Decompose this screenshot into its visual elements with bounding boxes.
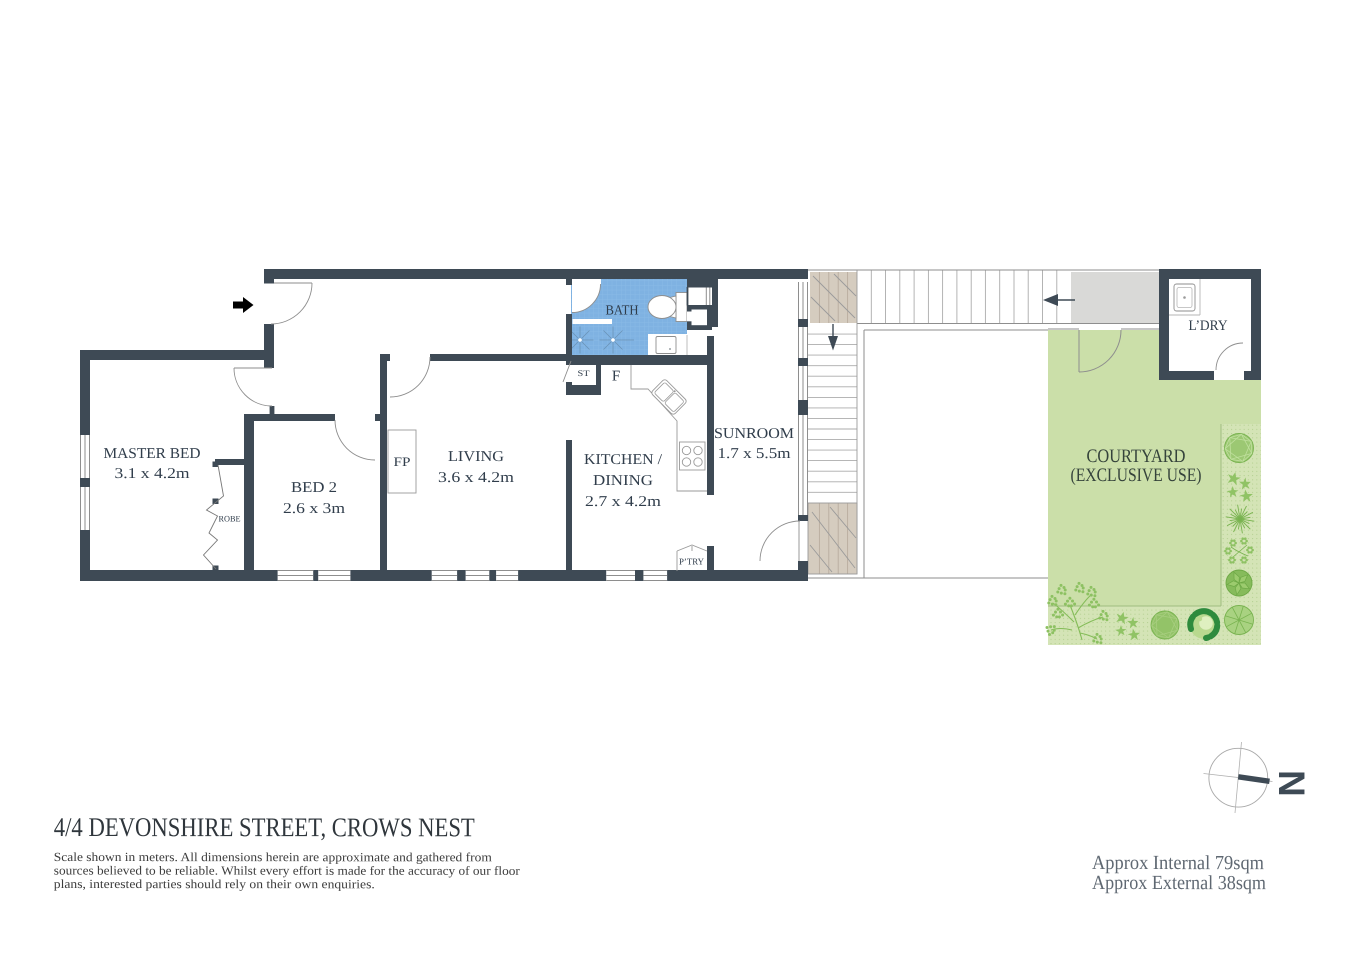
svg-text:2.7 x 4.2m: 2.7 x 4.2m: [585, 494, 661, 510]
svg-text:1.7 x 5.5m: 1.7 x 5.5m: [717, 446, 790, 462]
svg-text:4/4 DEVONSHIRE STREET, CROWS N: 4/4 DEVONSHIRE STREET, CROWS NEST: [54, 812, 475, 842]
svg-text:BATH: BATH: [605, 303, 638, 318]
svg-text:DINING: DINING: [593, 473, 653, 489]
svg-text:KITCHEN /: KITCHEN /: [584, 452, 663, 468]
svg-text:(EXCLUSIVE USE): (EXCLUSIVE USE): [1070, 465, 1201, 486]
svg-text:ROBE: ROBE: [218, 513, 240, 523]
svg-text:2.6 x 3m: 2.6 x 3m: [283, 501, 345, 517]
svg-text:P’TRY: P’TRY: [679, 556, 704, 566]
svg-text:FP: FP: [393, 454, 410, 469]
svg-text:BED 2: BED 2: [291, 480, 337, 496]
svg-text:Approx Internal 79sqm: Approx Internal 79sqm: [1092, 852, 1264, 874]
svg-text:sources believed to be reliab: sources believed to be reliable. Whilst …: [54, 864, 521, 878]
svg-text:F: F: [612, 368, 620, 384]
svg-text:N: N: [1271, 770, 1312, 797]
svg-text:LIVING: LIVING: [448, 449, 504, 465]
svg-text:L’DRY: L’DRY: [1188, 318, 1227, 334]
svg-text:ST: ST: [577, 368, 590, 378]
svg-text:SUNROOM: SUNROOM: [714, 426, 794, 442]
svg-text:COURTYARD: COURTYARD: [1086, 446, 1185, 467]
svg-text:plans, interested parties shou: plans, interested parties should rely on…: [54, 877, 375, 891]
svg-text:3.6 x 4.2m: 3.6 x 4.2m: [438, 470, 514, 486]
svg-text:Approx External 38sqm: Approx External 38sqm: [1092, 872, 1266, 894]
svg-text:MASTER BED: MASTER BED: [103, 446, 200, 462]
svg-text:3.1 x 4.2m: 3.1 x 4.2m: [114, 466, 189, 482]
svg-text:Scale shown in meters. All dim: Scale shown in meters. All dimensions he…: [54, 850, 492, 864]
